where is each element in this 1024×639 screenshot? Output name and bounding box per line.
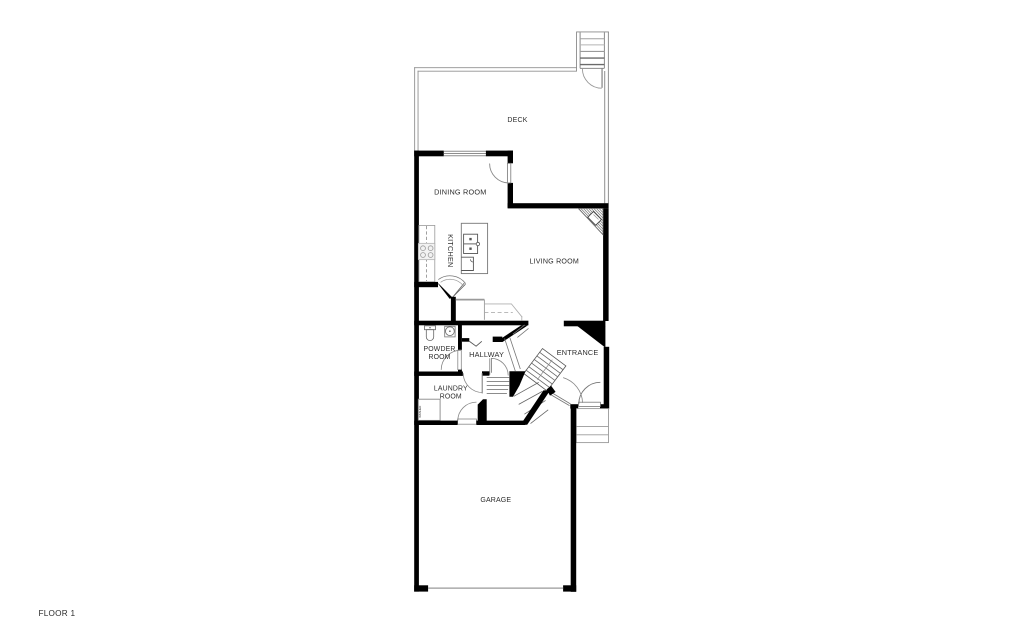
svg-text:FLOOR 1: FLOOR 1	[39, 609, 76, 618]
svg-text:DECK: DECK	[507, 117, 527, 124]
svg-text:POWDER: POWDER	[424, 346, 456, 353]
svg-text:ROOM: ROOM	[428, 354, 450, 361]
svg-text:LAUNDRY: LAUNDRY	[434, 385, 468, 392]
svg-text:KITCHEN: KITCHEN	[446, 234, 455, 267]
svg-text:LIVING ROOM: LIVING ROOM	[529, 257, 579, 265]
svg-text:GARAGE: GARAGE	[480, 497, 511, 504]
svg-text:ROOM: ROOM	[440, 393, 462, 400]
svg-text:WASHER: WASHER	[418, 406, 422, 418]
svg-text:DINING ROOM: DINING ROOM	[434, 187, 486, 196]
svg-text:HALLWAY: HALLWAY	[469, 350, 504, 359]
svg-text:ENTRANCE: ENTRANCE	[557, 348, 599, 357]
